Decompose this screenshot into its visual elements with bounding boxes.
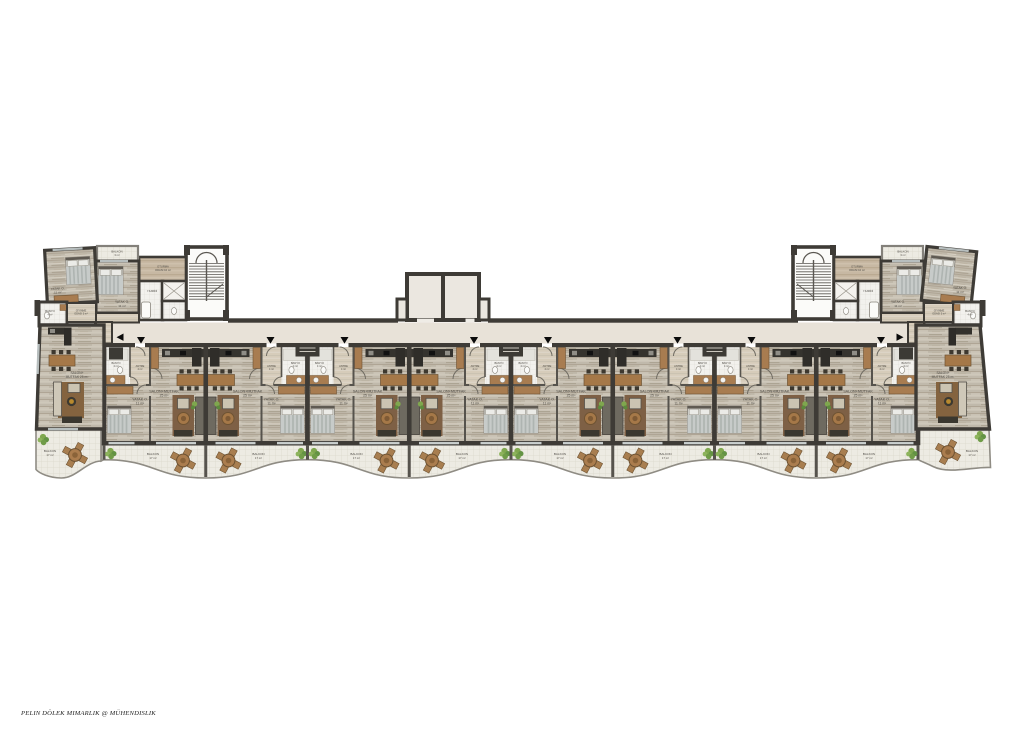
svg-text:MUTFAK 25 m²: MUTFAK 25 m²: [932, 375, 956, 379]
svg-text:BALKON: BALKON: [897, 250, 908, 254]
svg-text:Y.KABİNİ: Y.KABİNİ: [863, 290, 874, 293]
svg-text:17 m²: 17 m²: [968, 453, 975, 457]
svg-text:OTURMA: OTURMA: [157, 265, 169, 269]
svg-text:4 m²: 4 m²: [968, 313, 973, 316]
svg-text:OTURMA: OTURMA: [851, 265, 863, 269]
svg-text:11 m²: 11 m²: [894, 304, 901, 308]
svg-text:Y.KABİNİ: Y.KABİNİ: [147, 290, 158, 293]
svg-text:ODASI 3 m²: ODASI 3 m²: [74, 313, 88, 316]
svg-text:11 m²: 11 m²: [118, 304, 125, 308]
svg-text:4 m²: 4 m²: [48, 313, 53, 316]
svg-text:11 m²: 11 m²: [956, 290, 963, 294]
svg-text:PELIN DÖLEK MIMARLIK @ MÜHENDI: PELIN DÖLEK MIMARLIK @ MÜHENDISLIK: [20, 709, 156, 717]
svg-text:17 m²: 17 m²: [46, 453, 53, 457]
svg-text:3 m²: 3 m²: [114, 253, 119, 257]
svg-text:BALKON: BALKON: [111, 250, 122, 254]
svg-text:ODASI 10 m²: ODASI 10 m²: [849, 268, 865, 272]
svg-text:ODASI 3 m²: ODASI 3 m²: [932, 313, 946, 316]
svg-text:ODASI 10 m²: ODASI 10 m²: [155, 268, 171, 272]
svg-text:3 m²: 3 m²: [900, 253, 905, 257]
svg-text:MUTFAK 25 m²: MUTFAK 25 m²: [66, 375, 90, 379]
svg-text:11 m²: 11 m²: [54, 290, 62, 294]
